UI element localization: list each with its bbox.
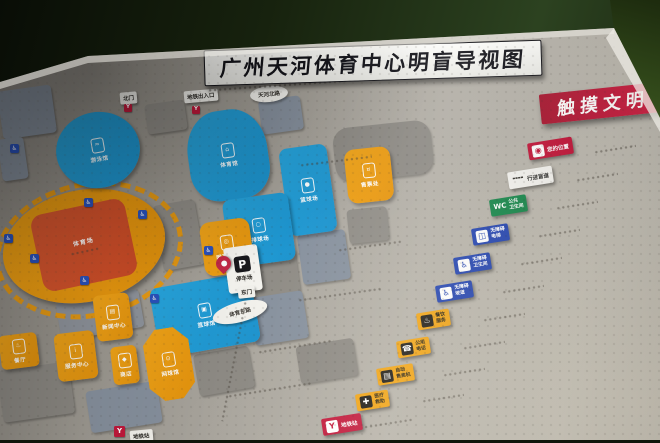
venue-natatorium: ≈ 游泳馆	[50, 105, 146, 194]
legend-item-accessible-elevator: ◫ 无障碍电梯	[471, 223, 511, 246]
wheelchair-icon: ♿	[439, 286, 453, 300]
braille-row	[576, 171, 618, 183]
venue-label: 体育馆	[220, 158, 239, 168]
vending-icon: ▤	[380, 369, 394, 383]
tactile-path-icon: ╍╍	[511, 173, 525, 187]
braille-row	[298, 286, 382, 303]
metro-marker-icon: Y	[192, 106, 200, 114]
venue-label: 售票处	[361, 179, 380, 189]
pin-icon: ◉	[531, 144, 545, 158]
parking-icon: P	[233, 255, 251, 273]
legend-item-first-aid: ✚ 医疗救助	[355, 390, 390, 412]
metro-marker-icon: Y	[124, 104, 132, 112]
map-block	[193, 345, 255, 396]
restaurant-icon: ♨	[11, 338, 26, 354]
accessibility-marker-icon: ♿	[4, 234, 13, 243]
braille-row	[502, 283, 544, 295]
sign-board: 体育场 ≈ 游泳馆 ⌂ 体育馆 ● 篮球场 ○ 排球场 ▣ 篮球馆 ◎ 网球中心…	[0, 0, 660, 440]
venue-label: 篮球场	[300, 193, 319, 203]
basketball-court-icon: ●	[300, 177, 315, 194]
legend-label: 电梯	[491, 232, 506, 240]
stadium-label: 体育场	[72, 235, 94, 248]
wheelchair-icon: ♿	[457, 258, 471, 272]
venue-label: 排球场	[251, 233, 270, 243]
legend-item-vending: ▤ 自动售卖机	[376, 363, 416, 386]
braille-row	[556, 199, 598, 211]
metro-icon: Y	[325, 419, 339, 433]
accessibility-marker-icon: ♿	[84, 198, 93, 207]
venue-label: 新闻中心	[102, 320, 127, 331]
basketball-hall-icon: ▣	[196, 302, 211, 319]
accessibility-marker-icon: ♿	[150, 294, 159, 303]
accessibility-marker-icon: ♿	[138, 210, 147, 219]
elevator-icon: ◫	[475, 229, 489, 243]
legend-label: 行进盲道	[526, 171, 549, 182]
venue-label: 网球馆	[161, 367, 180, 378]
legend-label: 卫生间	[473, 261, 488, 269]
legend-item-telephone: ☎ 公用电话	[396, 337, 431, 359]
gate-tag-north: 北门	[120, 91, 138, 104]
braille-row	[443, 366, 485, 378]
venue-label: 游泳馆	[90, 153, 109, 164]
braille-row	[594, 143, 636, 155]
braille-row	[538, 227, 580, 239]
braille-row	[463, 339, 505, 351]
braille-row	[422, 392, 464, 404]
metro-marker-icon: Y	[114, 426, 125, 437]
legend-label: 坡道	[455, 289, 470, 297]
gate-tag-east: 东门	[237, 285, 255, 299]
accessibility-marker-icon: ♿	[204, 246, 213, 255]
legend-label: 地铁站	[340, 418, 358, 428]
news-center-icon: ▤	[105, 304, 120, 320]
shop-icon: ◆	[117, 352, 132, 368]
volleyball-court-icon: ○	[251, 217, 266, 234]
legend-label: 服务	[436, 318, 446, 325]
accessibility-marker-icon: ♿	[10, 144, 19, 153]
accessibility-marker-icon: ♿	[30, 254, 39, 263]
touch-civility-label: 触摸文明	[557, 85, 649, 121]
legend-item-metro-station: Y 地铁站	[321, 413, 363, 436]
legend-item-dining: ♨ 餐饮服务	[416, 309, 451, 331]
legend-item-accessible-toilet: ♿ 无障碍卫生间	[453, 252, 493, 275]
braille-row	[520, 255, 562, 267]
map-block	[346, 206, 389, 244]
toilet-icon: WC	[493, 200, 507, 214]
legend-item-your-location: ◉ 您的位置	[527, 137, 574, 161]
dining-icon: ♨	[420, 314, 434, 328]
legend-item-accessible-ramp: ♿ 无障碍坡道	[435, 280, 475, 303]
legend-label: 卫生间	[509, 203, 524, 211]
tennis-hall-icon: ⊙	[161, 351, 176, 368]
page-title: 广州天河体育中心明盲导视图	[219, 43, 527, 83]
legend-label: 售卖机	[396, 372, 411, 380]
map-block	[297, 229, 351, 285]
venue-label: 服务中心	[65, 359, 90, 370]
phone-icon: ☎	[400, 342, 414, 356]
legend-label: 您的位置	[546, 142, 569, 153]
venue-label: 餐厅	[14, 355, 27, 364]
venue-service-center: i 服务中心	[53, 330, 99, 383]
accessibility-marker-icon: ♿	[80, 276, 89, 285]
map-block	[0, 84, 57, 139]
gymnasium-icon: ⌂	[220, 142, 235, 159]
metro-station-tag: 地铁站	[130, 429, 153, 443]
venue-shop: ◆ 商店	[110, 345, 140, 386]
map-block	[144, 99, 188, 134]
venue-news-center: ▤ 新闻中心	[92, 292, 133, 342]
touch-civility-plate: 触摸文明	[539, 81, 660, 124]
legend-label: 电话	[416, 346, 426, 353]
ticket-office-icon: ¤	[361, 162, 375, 178]
first-aid-icon: ✚	[359, 395, 373, 409]
venue-label: 商店	[120, 369, 133, 378]
legend-item-tactile-path: ╍╍ 行进盲道	[507, 166, 554, 190]
legend-label: 救助	[375, 399, 385, 406]
legend-item-public-toilet: WC 公共卫生间	[489, 194, 529, 217]
parking-label: 停车场	[236, 273, 253, 283]
info-icon: i	[68, 343, 83, 359]
braille-row	[483, 311, 525, 323]
venue-restaurant: ♨ 餐厅	[0, 332, 40, 370]
natatorium-icon: ≈	[89, 137, 104, 154]
